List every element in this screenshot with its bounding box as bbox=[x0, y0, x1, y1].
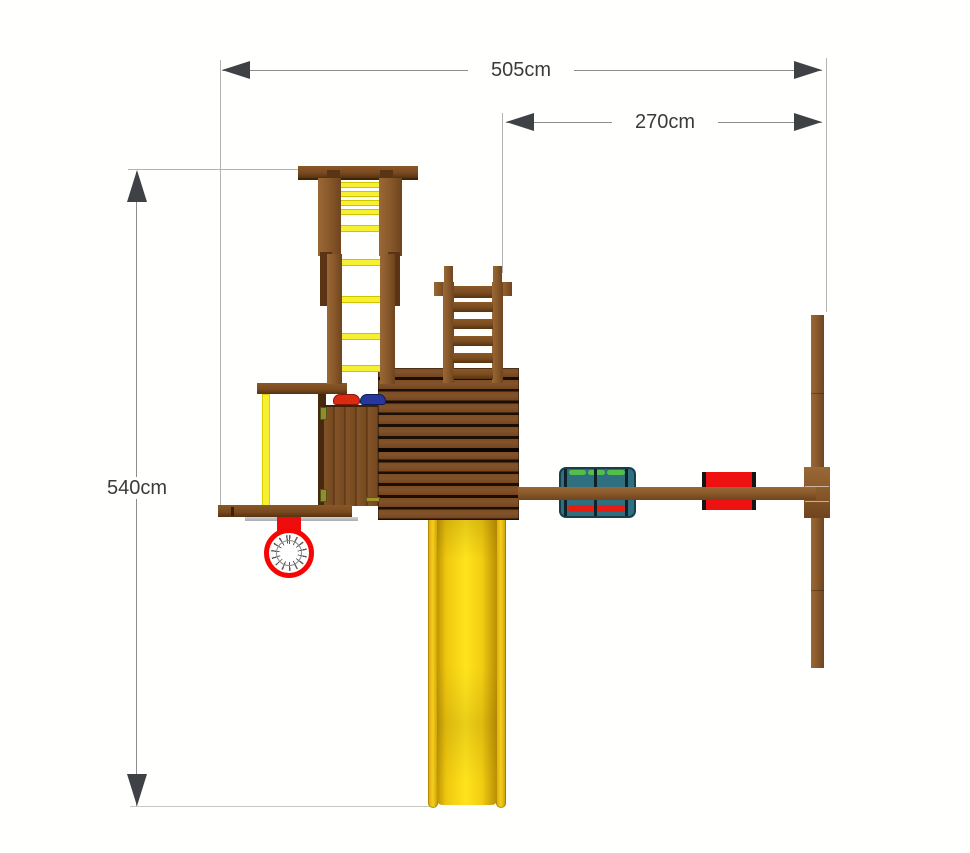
beam-joint-tick bbox=[231, 507, 234, 516]
tower-rail-left-upper bbox=[318, 178, 341, 256]
door-latch bbox=[366, 497, 380, 502]
playhouse-bottom-beam bbox=[218, 505, 352, 517]
ladder-rung bbox=[453, 369, 493, 379]
slide-rail-right bbox=[496, 519, 506, 808]
swing-beam bbox=[518, 487, 816, 500]
ladder-rung bbox=[453, 302, 493, 312]
dimension-label-total-width: 505cm bbox=[468, 59, 574, 81]
dimension-label-swing-width: 270cm bbox=[612, 111, 718, 133]
post-seam bbox=[811, 393, 824, 394]
tower-rail-right bbox=[380, 254, 395, 384]
arrowhead-left-icon bbox=[506, 113, 534, 131]
ladder-rung bbox=[453, 353, 493, 363]
playhouse-yellow-post bbox=[262, 394, 270, 508]
hoop-center bbox=[280, 544, 298, 562]
tower-rail-right-upper bbox=[379, 178, 402, 256]
beam-joint-seam bbox=[805, 486, 829, 487]
nest-swing-green-stripe bbox=[607, 470, 625, 475]
tower-rung bbox=[341, 296, 381, 303]
ladder-rail-right bbox=[492, 282, 503, 383]
slide-surface bbox=[437, 519, 497, 805]
climbing-hold-red bbox=[333, 394, 360, 405]
extension-line-left bbox=[220, 60, 221, 508]
extension-line-top bbox=[128, 169, 298, 170]
beam-joint-seam bbox=[805, 501, 829, 502]
extension-line-middle bbox=[502, 113, 503, 273]
arrowhead-right-icon bbox=[794, 61, 822, 79]
arrowhead-up-icon bbox=[127, 170, 147, 202]
deck-gap bbox=[378, 448, 519, 452]
nest-swing-green-stripe bbox=[569, 470, 586, 475]
door-hinge-top bbox=[320, 407, 327, 420]
basketball-hoop bbox=[264, 528, 314, 578]
playground-plan-diagram: 505cm 270cm 540cm bbox=[0, 0, 970, 853]
door-hinge-bottom bbox=[320, 489, 327, 502]
arrowhead-left-icon bbox=[222, 61, 250, 79]
extension-line-right bbox=[826, 58, 827, 312]
dimension-label-total-depth: 540cm bbox=[84, 477, 190, 499]
climbing-hold-blue bbox=[360, 394, 386, 405]
arrowhead-down-icon bbox=[127, 774, 147, 806]
tower-rung bbox=[341, 259, 381, 266]
ladder-rail-left bbox=[443, 282, 454, 383]
tower-rung bbox=[341, 365, 381, 372]
tower-rail-left bbox=[327, 254, 342, 384]
playhouse-top-beam bbox=[257, 383, 347, 394]
arrowhead-right-icon bbox=[794, 113, 822, 131]
ladder-rung bbox=[453, 336, 493, 346]
tower-rung bbox=[341, 333, 381, 340]
post-seam bbox=[811, 590, 824, 591]
extension-line-bottom bbox=[130, 806, 432, 807]
playhouse-base-strip bbox=[245, 517, 358, 521]
platform-deck bbox=[378, 368, 519, 520]
playhouse-door bbox=[324, 405, 378, 506]
ladder-rung bbox=[453, 319, 493, 329]
